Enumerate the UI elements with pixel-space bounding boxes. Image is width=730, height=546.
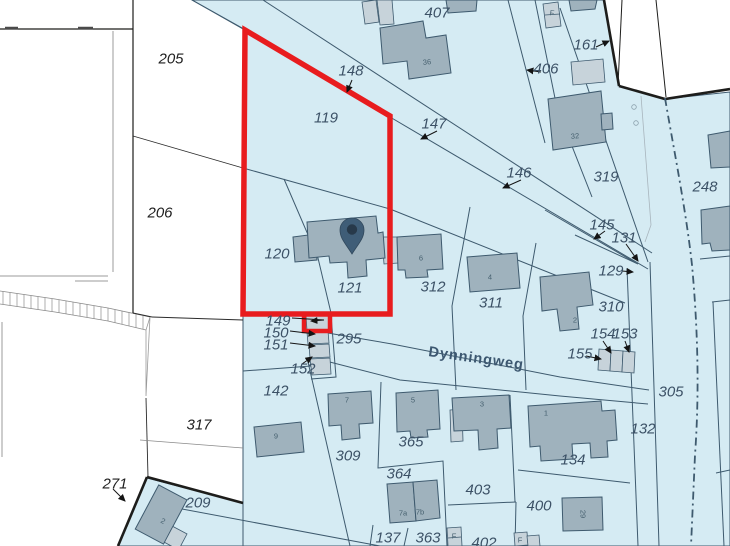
parcel-label-248: 248 (691, 179, 718, 196)
parcel-label-305: 305 (658, 384, 684, 401)
parcel-label-120: 120 (264, 246, 290, 263)
parcel-label-406: 406 (533, 61, 559, 78)
building-label-1: 1 (544, 409, 548, 418)
building-9 (254, 422, 304, 457)
parcel-label-142: 142 (263, 383, 289, 400)
parcel-label-132: 132 (630, 421, 656, 438)
parcel-label-312: 312 (420, 279, 446, 296)
parcel-label-403: 403 (465, 482, 491, 499)
parcel-label-147: 147 (421, 116, 447, 133)
parcel-label-310: 310 (598, 299, 624, 316)
building-label-9: 9 (274, 432, 278, 441)
parcel-label-129: 129 (598, 263, 624, 280)
building-label-5: 5 (411, 396, 415, 405)
building-label-6: 6 (419, 254, 423, 263)
utility-building-f (527, 535, 540, 546)
building-label-7: 7 (345, 396, 349, 405)
cadastral-map[interactable]: 2052063172712094071481191471464061613192… (0, 0, 730, 546)
parcel-label-319: 319 (593, 169, 619, 186)
parcel-label-137: 137 (375, 530, 401, 546)
parcel-label-295: 295 (335, 331, 362, 348)
building-label-4: 4 (488, 273, 492, 282)
parcel-label-151: 151 (263, 337, 288, 354)
shed (377, 0, 394, 25)
building-label-36: 36 (422, 57, 431, 67)
parcel-label-365: 365 (398, 434, 424, 451)
parcel-label-206: 206 (146, 205, 173, 222)
building-top-edge (569, 0, 597, 11)
parcel-label-134: 134 (560, 452, 585, 469)
building-label-7b: 7b (416, 508, 424, 517)
building-label-3: 3 (480, 400, 484, 409)
building-248a (708, 131, 730, 168)
parcel-label-205: 205 (157, 51, 184, 68)
parcel-label-364: 364 (386, 466, 411, 483)
building-label-F: F (452, 532, 457, 541)
parcel-label-311: 311 (479, 295, 503, 312)
parcel-label-131: 131 (611, 230, 636, 247)
parcel-label-317: 317 (186, 417, 212, 434)
shed (362, 0, 379, 24)
parcel-label-209: 209 (184, 495, 211, 512)
building-label-F: F (518, 536, 523, 545)
building-label-32: 32 (570, 131, 579, 141)
garage-155 (598, 349, 611, 371)
garage-154 (610, 350, 623, 372)
parcel-label-161: 161 (573, 37, 598, 54)
parcel-label-400: 400 (526, 498, 552, 515)
parcel-label-148: 148 (338, 63, 364, 80)
parcel-label-407: 407 (424, 5, 450, 22)
building-top-edge (446, 0, 477, 13)
building-32-annex (601, 113, 613, 130)
building-label-7a: 7a (399, 509, 408, 518)
parcel-label-152: 152 (290, 361, 316, 378)
shed (571, 59, 605, 85)
building-label-29: 29 (579, 510, 588, 518)
parcel-label-363: 363 (415, 530, 441, 546)
parcel-label-271: 271 (101, 476, 127, 493)
parcel-label-119: 119 (314, 110, 339, 127)
parcel-label-121: 121 (337, 280, 362, 297)
building-4 (467, 253, 520, 292)
garage-153 (622, 351, 635, 373)
parcel-label-153: 153 (612, 326, 638, 343)
parcel-label-155: 155 (567, 346, 593, 363)
building-32 (548, 91, 606, 150)
parcel-label-146: 146 (506, 165, 532, 182)
garage-149 (306, 315, 330, 331)
parcel-label-402: 402 (471, 535, 497, 546)
building-label-2: 2 (573, 316, 577, 325)
parcel-label-309: 309 (335, 448, 361, 465)
map-canvas[interactable]: 2052063172712094071481191471464061613192… (0, 0, 730, 546)
